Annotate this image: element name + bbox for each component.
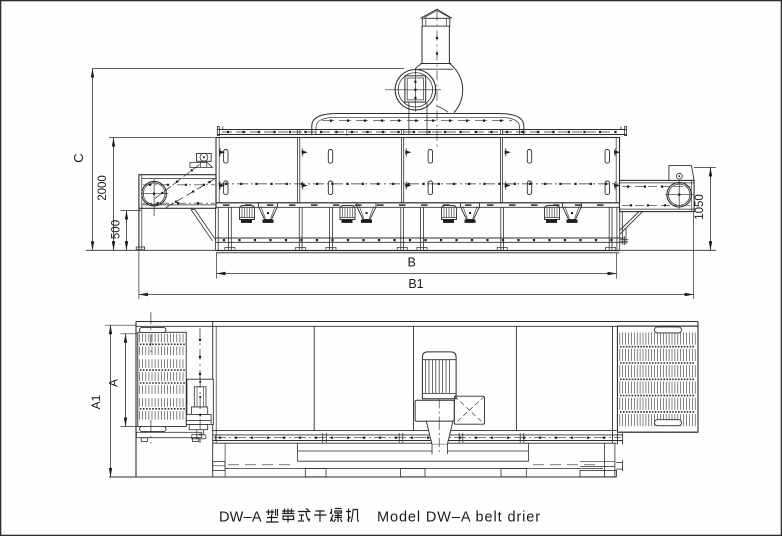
svg-text:2000: 2000 bbox=[97, 175, 109, 201]
svg-text:C: C bbox=[71, 153, 86, 162]
svg-text:500: 500 bbox=[111, 220, 123, 239]
svg-text:A: A bbox=[107, 379, 121, 387]
svg-text:A1: A1 bbox=[89, 394, 103, 409]
svg-text:B: B bbox=[408, 256, 416, 270]
svg-text:DW–A: DW–A bbox=[219, 510, 262, 526]
svg-text:B1: B1 bbox=[408, 277, 423, 291]
svg-text:1050: 1050 bbox=[694, 194, 706, 220]
svg-text:Model DW–A belt drier: Model DW–A belt drier bbox=[377, 510, 541, 526]
